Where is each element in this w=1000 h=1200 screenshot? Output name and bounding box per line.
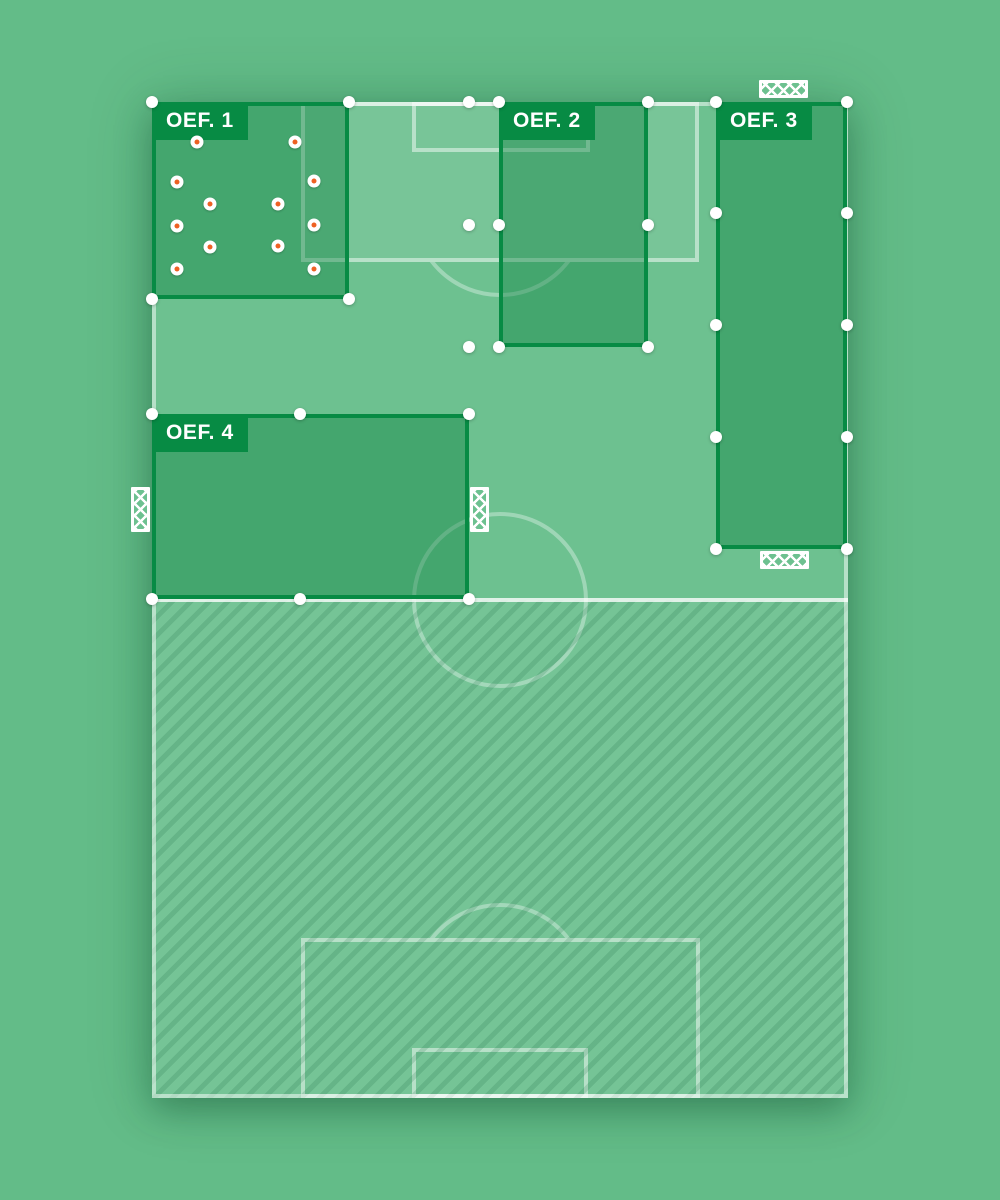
goal-right[interactable] xyxy=(470,487,489,532)
resize-handle-oef-3[interactable] xyxy=(710,96,722,108)
resize-handle-oef-4[interactable] xyxy=(146,593,158,605)
zone-badge-oef-2[interactable]: OEF. 2 xyxy=(499,102,595,140)
resize-handle-oef-2[interactable] xyxy=(493,96,505,108)
resize-handle-oef-3[interactable] xyxy=(710,207,722,219)
resize-handle-oef-2[interactable] xyxy=(493,219,505,231)
resize-handle-oef-3[interactable] xyxy=(710,319,722,331)
detached-handle[interactable] xyxy=(463,341,475,353)
goal-top[interactable] xyxy=(759,80,808,98)
resize-handle-oef-3[interactable] xyxy=(710,431,722,443)
resize-handle-oef-4[interactable] xyxy=(146,408,158,420)
resize-handle-oef-2[interactable] xyxy=(642,96,654,108)
exercise-zone-oef-3[interactable]: OEF. 3 xyxy=(716,102,847,549)
cone-marker[interactable] xyxy=(204,241,217,254)
resize-handle-oef-1[interactable] xyxy=(343,293,355,305)
zone-label-oef-1: OEF. 1 xyxy=(166,109,234,133)
cone-marker[interactable] xyxy=(289,136,302,149)
resize-handle-oef-3[interactable] xyxy=(710,543,722,555)
cone-marker[interactable] xyxy=(308,263,321,276)
cone-marker[interactable] xyxy=(204,198,217,211)
exercise-zone-oef-4[interactable]: OEF. 4 xyxy=(152,414,469,599)
cone-marker[interactable] xyxy=(171,263,184,276)
exercise-zone-oef-2[interactable]: OEF. 2 xyxy=(499,102,648,347)
zone-label-oef-3: OEF. 3 xyxy=(730,109,798,133)
goal-mid-right[interactable] xyxy=(760,551,809,569)
resize-handle-oef-2[interactable] xyxy=(493,341,505,353)
zone-badge-oef-3[interactable]: OEF. 3 xyxy=(716,102,812,140)
detached-handle[interactable] xyxy=(463,219,475,231)
resize-handle-oef-3[interactable] xyxy=(841,431,853,443)
resize-handle-oef-3[interactable] xyxy=(841,543,853,555)
zone-label-oef-2: OEF. 2 xyxy=(513,109,581,133)
cone-marker[interactable] xyxy=(308,219,321,232)
cone-marker[interactable] xyxy=(191,136,204,149)
detached-handle[interactable] xyxy=(463,96,475,108)
resize-handle-oef-3[interactable] xyxy=(841,96,853,108)
resize-handle-oef-2[interactable] xyxy=(642,219,654,231)
resize-handle-oef-4[interactable] xyxy=(463,408,475,420)
resize-handle-oef-4[interactable] xyxy=(294,408,306,420)
cone-marker[interactable] xyxy=(171,176,184,189)
cone-marker[interactable] xyxy=(272,198,285,211)
zone-badge-oef-1[interactable]: OEF. 1 xyxy=(152,102,248,140)
goal-left[interactable] xyxy=(131,487,150,532)
cone-marker[interactable] xyxy=(272,240,285,253)
resize-handle-oef-3[interactable] xyxy=(841,207,853,219)
zone-badge-oef-4[interactable]: OEF. 4 xyxy=(152,414,248,452)
cone-marker[interactable] xyxy=(171,220,184,233)
cone-marker[interactable] xyxy=(308,175,321,188)
resize-handle-oef-1[interactable] xyxy=(343,96,355,108)
resize-handle-oef-1[interactable] xyxy=(146,96,158,108)
resize-handle-oef-2[interactable] xyxy=(642,341,654,353)
resize-handle-oef-1[interactable] xyxy=(146,293,158,305)
resize-handle-oef-4[interactable] xyxy=(294,593,306,605)
drill-editor-canvas: OEF. 1OEF. 2OEF. 3OEF. 4 xyxy=(0,0,1000,1200)
zone-label-oef-4: OEF. 4 xyxy=(166,421,234,445)
resize-handle-oef-4[interactable] xyxy=(463,593,475,605)
resize-handle-oef-3[interactable] xyxy=(841,319,853,331)
